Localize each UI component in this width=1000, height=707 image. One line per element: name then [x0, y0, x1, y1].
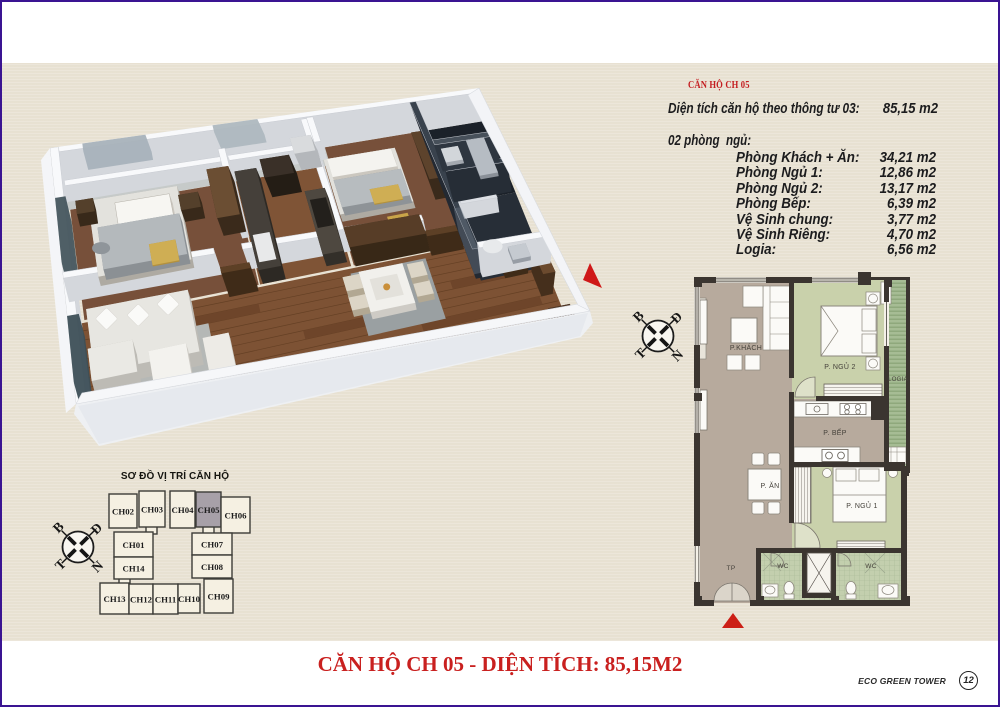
svg-text:P. NGỦ 1: P. NGỦ 1 [846, 501, 877, 510]
svg-text:LOGIA: LOGIA [888, 377, 908, 383]
svg-text:CH10: CH10 [178, 594, 201, 604]
svg-text:CH02: CH02 [112, 507, 135, 517]
svg-text:CH07: CH07 [201, 540, 224, 550]
svg-text:CH06: CH06 [225, 511, 248, 521]
svg-text:P. NGỦ 2: P. NGỦ 2 [824, 362, 855, 371]
svg-text:CH12: CH12 [130, 595, 153, 605]
svg-text:TP: TP [727, 565, 736, 572]
svg-text:CH05: CH05 [198, 505, 221, 515]
svg-text:CH14: CH14 [123, 564, 146, 574]
svg-text:CH01: CH01 [123, 540, 145, 550]
svg-text:P. ĂN: P. ĂN [761, 481, 780, 490]
svg-text:CH13: CH13 [104, 594, 127, 604]
svg-text:CH11: CH11 [155, 595, 177, 605]
svg-text:WC: WC [865, 563, 876, 570]
svg-text:CH03: CH03 [141, 505, 164, 515]
svg-text:CH04: CH04 [172, 505, 195, 515]
svg-text:P.KHÁCH: P.KHÁCH [730, 343, 762, 352]
svg-text:CH08: CH08 [201, 562, 224, 572]
svg-text:CH09: CH09 [208, 592, 231, 602]
svg-text:WC: WC [777, 563, 788, 570]
